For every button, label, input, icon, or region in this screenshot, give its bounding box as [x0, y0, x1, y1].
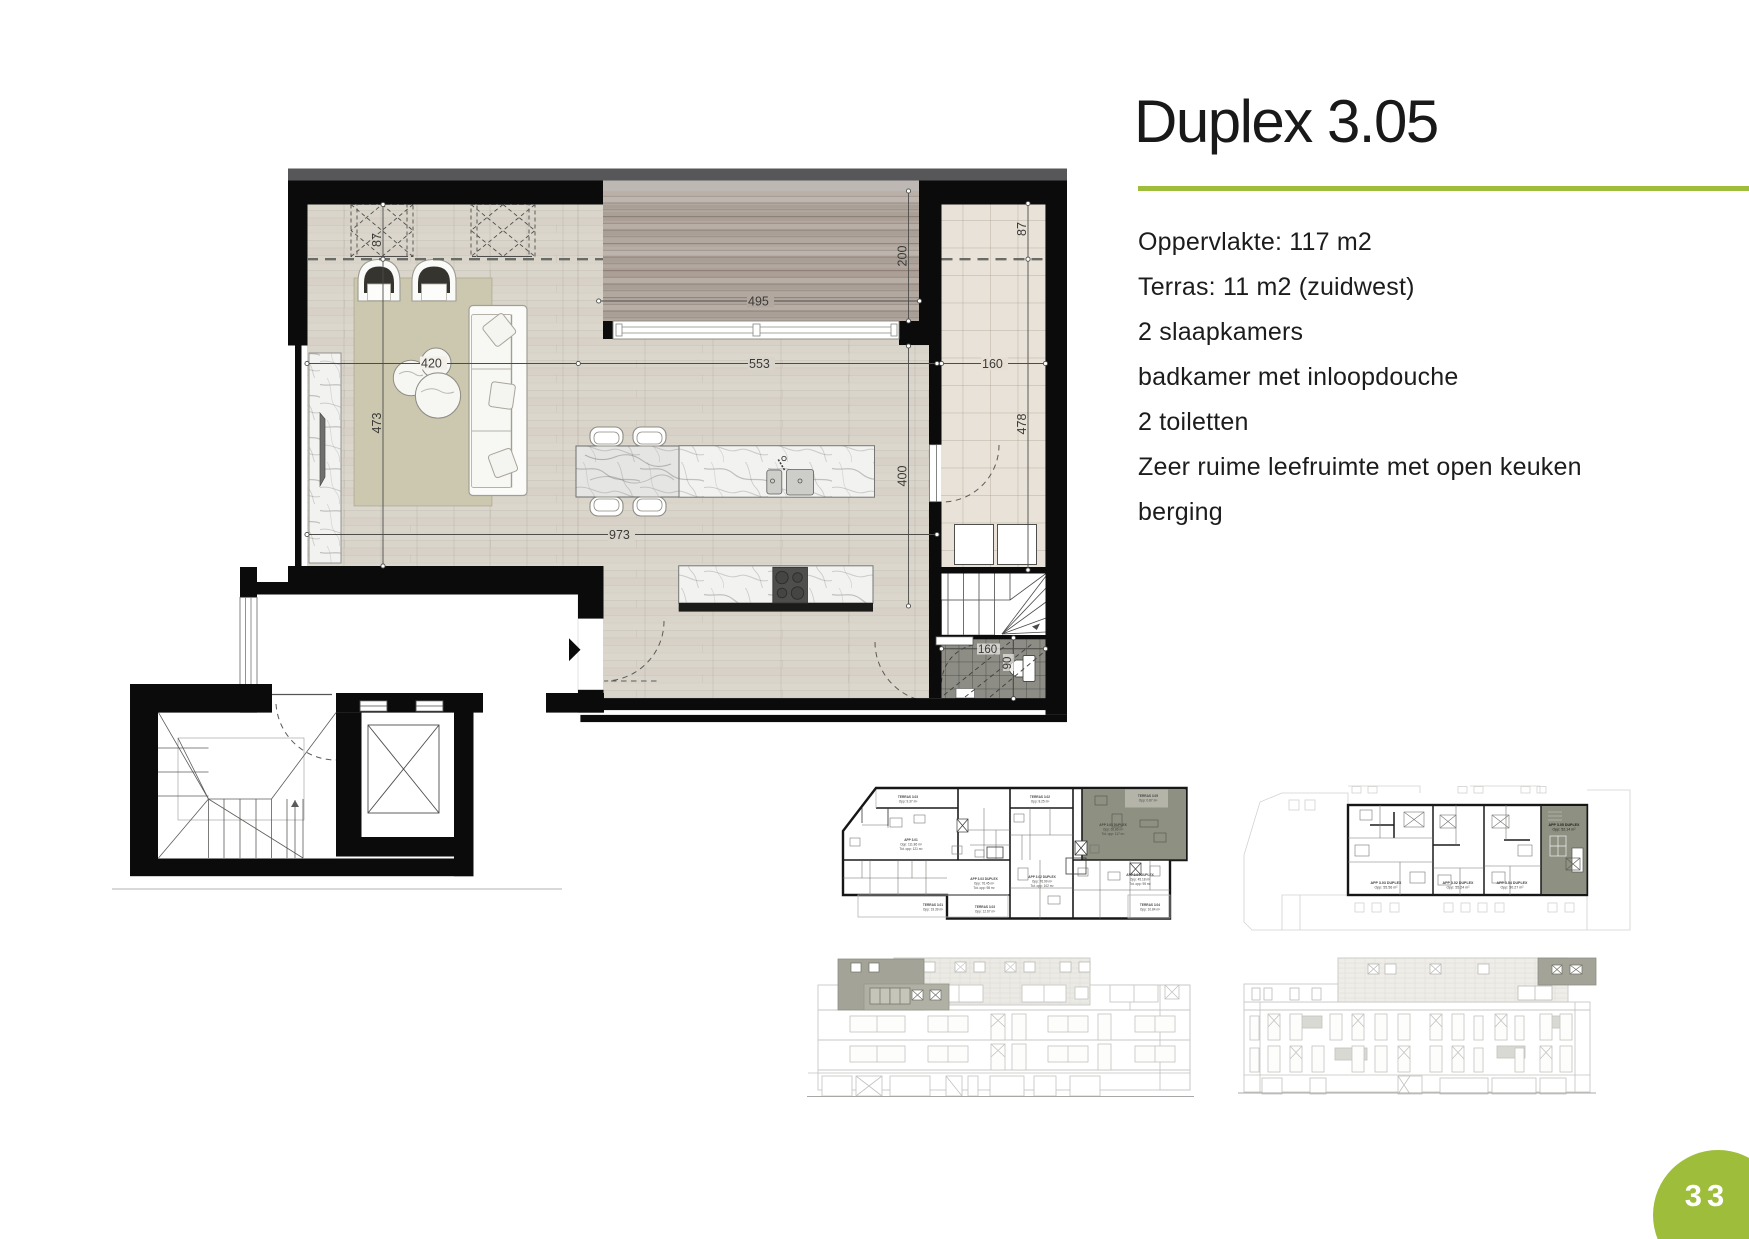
svg-text:Opp: 55.24 m²: Opp: 55.24 m² [1447, 886, 1471, 890]
svg-text:APP 3.04 DUPLEX: APP 3.04 DUPLEX [1126, 873, 1154, 877]
svg-text:973: 973 [609, 528, 630, 542]
svg-text:Opp: 9.37 m²: Opp: 9.37 m² [899, 800, 918, 804]
svg-text:APP 3.02 DUPLEX: APP 3.02 DUPLEX [1028, 875, 1056, 879]
svg-text:553: 553 [749, 357, 770, 371]
svg-text:495: 495 [748, 295, 769, 309]
svg-text:APP 3.01: APP 3.01 [904, 838, 918, 842]
svg-text:Opp: 8.25 m²: Opp: 8.25 m² [1031, 800, 1050, 804]
svg-text:APP 3.03 DUPLEX: APP 3.03 DUPLEX [970, 877, 998, 881]
svg-text:160: 160 [978, 644, 997, 656]
svg-text:APP 3.05 DUPLEX: APP 3.05 DUPLEX [1549, 823, 1580, 827]
svg-text:Tot. opp: 95 m²: Tot. opp: 95 m² [1129, 882, 1150, 886]
svg-text:Opp: 12.67 m²: Opp: 12.67 m² [975, 910, 995, 914]
svg-text:Opp: 111.86 m²: Opp: 111.86 m² [900, 843, 922, 847]
svg-text:90: 90 [1002, 657, 1014, 670]
svg-text:Opp: 50.27 m²: Opp: 50.27 m² [1501, 886, 1525, 890]
svg-text:TERRAS 3.03: TERRAS 3.03 [975, 905, 995, 909]
svg-text:478: 478 [1015, 414, 1029, 435]
svg-text:APP 3.03 DUPLEX: APP 3.03 DUPLEX [1371, 881, 1402, 885]
svg-text:Opp: 65.86 m²: Opp: 65.86 m² [1103, 828, 1123, 832]
svg-text:400: 400 [896, 466, 910, 487]
svg-text:200: 200 [896, 246, 910, 267]
svg-text:TERRAS 3.05: TERRAS 3.05 [1138, 794, 1158, 798]
svg-text:APP 3.05 DUPLEX: APP 3.05 DUPLEX [1099, 823, 1127, 827]
svg-text:APP 3.02 DUPLEX: APP 3.02 DUPLEX [1443, 881, 1474, 885]
svg-text:Tot. opp: 117 m²: Tot. opp: 117 m² [1102, 832, 1125, 836]
svg-text:Opp: 55.56 m²: Opp: 55.56 m² [1375, 886, 1399, 890]
svg-text:Tot. opp: 102 m²: Tot. opp: 102 m² [1030, 884, 1053, 888]
svg-text:Opp: 76.99 m²: Opp: 76.99 m² [1032, 880, 1052, 884]
svg-text:TERRAS 3.03: TERRAS 3.03 [898, 795, 918, 799]
svg-text:87: 87 [1015, 222, 1029, 236]
svg-text:Opp: 0.87 m²: Opp: 0.87 m² [1139, 799, 1158, 803]
svg-text:TERRAS 3.04: TERRAS 3.04 [1140, 903, 1160, 907]
svg-text:Tot. opp: 121 m²: Tot. opp: 121 m² [899, 847, 922, 851]
svg-text:87: 87 [370, 233, 384, 247]
svg-text:Opp: 52.14 m²: Opp: 52.14 m² [1553, 828, 1577, 832]
svg-text:TERRAS 3.02: TERRAS 3.02 [1030, 795, 1050, 799]
svg-text:473: 473 [370, 413, 384, 434]
svg-text:Opp: 10.84 m²: Opp: 10.84 m² [1140, 908, 1160, 912]
svg-text:160: 160 [982, 357, 1003, 371]
svg-text:Opp: 76.45 m²: Opp: 76.45 m² [974, 882, 994, 886]
svg-text:Tot. opp: 98 m²: Tot. opp: 98 m² [973, 886, 994, 890]
svg-text:420: 420 [421, 357, 442, 371]
svg-text:Opp: 45.18 m²: Opp: 45.18 m² [1130, 878, 1150, 882]
svg-text:TERRAS 3.01: TERRAS 3.01 [923, 903, 943, 907]
svg-text:Opp: 19.39 m²: Opp: 19.39 m² [923, 908, 943, 912]
svg-text:APP 3.04 DUPLEX: APP 3.04 DUPLEX [1497, 881, 1528, 885]
